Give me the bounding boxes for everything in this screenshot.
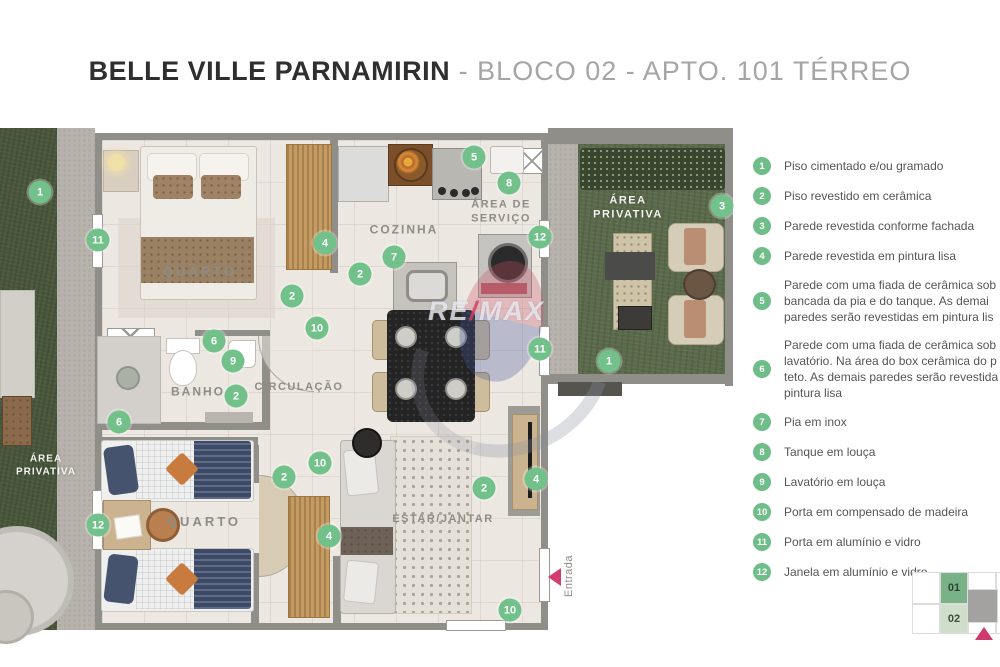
legend-text: Lavatório em louça xyxy=(784,474,885,490)
plan-marker-2: 2 xyxy=(273,466,296,489)
room-label-cozinha: COZINHA xyxy=(370,223,439,238)
key-plan-block-01: 01 xyxy=(940,572,968,604)
pillow xyxy=(103,553,139,604)
key-plan-cell xyxy=(912,572,940,604)
wardrobe xyxy=(288,496,330,618)
entrance-label: Entrada xyxy=(563,555,575,597)
legend-number: 7 xyxy=(753,413,771,431)
legend-number: 3 xyxy=(753,217,771,235)
legend-item-8: 8Tanque em louça xyxy=(753,443,1000,461)
legend-text: Piso revestido em cerâmica xyxy=(784,188,931,204)
burner xyxy=(462,189,470,197)
plan-marker-8: 8 xyxy=(498,172,521,195)
key-plan-cell xyxy=(912,604,940,634)
legend-number: 2 xyxy=(753,187,771,205)
legend-number: 9 xyxy=(753,473,771,491)
room-label-quarto: QUARTO xyxy=(167,514,241,530)
sofa xyxy=(340,440,396,614)
key-plan-core xyxy=(967,589,998,623)
plan-marker-2: 2 xyxy=(281,285,304,308)
hedge xyxy=(580,148,725,190)
room-label--rea-privativa: ÁREA PRIVATIVA xyxy=(593,194,663,222)
legend-text: Parede revestida em pintura lisa xyxy=(784,248,956,264)
wall xyxy=(548,128,733,144)
plan-marker-5: 5 xyxy=(463,146,486,169)
serving-tray xyxy=(618,306,652,330)
legend-item-4: 4Parede revestida em pintura lisa xyxy=(753,247,1000,265)
bath-counter xyxy=(205,412,253,423)
accent-pillow xyxy=(201,175,241,199)
plan-marker-7: 7 xyxy=(383,246,406,269)
legend-text: Piso cimentado e/ou gramado xyxy=(784,158,943,174)
legend-text: Janela em alumínio e vidro xyxy=(784,564,927,580)
service-window xyxy=(522,148,543,174)
place-setting xyxy=(395,326,417,348)
plan-marker-6: 6 xyxy=(108,411,131,434)
legend-number: 10 xyxy=(753,503,771,521)
plan-marker-11: 11 xyxy=(529,338,552,361)
watermark-re: RE xyxy=(428,296,470,326)
living-door-10 xyxy=(446,620,506,631)
plan-marker-2: 2 xyxy=(473,477,496,500)
legend-text: Porta em alumínio e vidro xyxy=(784,534,921,550)
picnic-table-top xyxy=(605,252,655,280)
burner xyxy=(450,189,458,197)
wall xyxy=(725,128,733,386)
desk-paper xyxy=(114,514,143,539)
plan-marker-10: 10 xyxy=(499,599,522,622)
legend-number: 8 xyxy=(753,443,771,461)
sofa-throw xyxy=(341,527,393,555)
fruit-bowl xyxy=(394,148,428,182)
room-label-circula-o: CIRCULAÇÃO xyxy=(255,381,344,395)
side-table-round xyxy=(352,428,382,458)
key-plan: 01 02 xyxy=(912,568,1000,646)
blanket xyxy=(194,441,251,499)
plan-marker-2: 2 xyxy=(349,263,372,286)
legend-item-1: 1Piso cimentado e/ou gramado xyxy=(753,157,1000,175)
side-table xyxy=(683,269,716,300)
project-name: BELLE VILLE PARNAMIRIN xyxy=(89,56,451,86)
room-label-estar-jantar: ESTAR/JANTAR xyxy=(392,513,493,527)
grill-table xyxy=(2,396,32,446)
legend-item-2: 2Piso revestido em cerâmica xyxy=(753,187,1000,205)
key-plan-north-arrow xyxy=(975,627,993,640)
plan-marker-3: 3 xyxy=(711,195,734,218)
legend-item-3: 3Parede revestida conforme fachada xyxy=(753,217,1000,235)
legend-item-7: 7Pia em inox xyxy=(753,413,1000,431)
burner xyxy=(438,187,446,195)
plan-marker-2: 2 xyxy=(225,385,248,408)
plan-marker-11: 11 xyxy=(87,229,110,252)
plan-marker-10: 10 xyxy=(309,452,332,475)
watermark-slash: / xyxy=(470,296,480,326)
legend-item-9: 9Lavatório em louça xyxy=(753,473,1000,491)
accent-pillow xyxy=(153,175,193,199)
pillow xyxy=(103,444,139,496)
legend-number: 11 xyxy=(753,533,771,551)
legend-number: 12 xyxy=(753,563,771,581)
key-plan-block-02: 02 xyxy=(940,604,968,634)
plan-marker-4: 4 xyxy=(314,232,337,255)
legend-text: Porta em compensado de madeira xyxy=(784,504,968,520)
plan-marker-1: 1 xyxy=(598,350,621,373)
burner xyxy=(471,187,479,195)
legend-number: 6 xyxy=(753,360,771,378)
legend: 1Piso cimentado e/ou gramado2Piso revest… xyxy=(753,157,1000,581)
room-label-quarto: QUARTO xyxy=(163,264,237,280)
room-label--rea-privativa: ÁREA PRIVATIVA xyxy=(16,454,76,479)
legend-text: Parede revestida conforme fachada xyxy=(784,218,974,234)
floor-plan: RE/MAX Entrada 1114210692621012472581211… xyxy=(0,128,736,633)
single-bed xyxy=(101,548,254,612)
shower-head xyxy=(116,366,140,390)
neighbor-deck xyxy=(0,290,35,398)
laundry-tank xyxy=(490,146,524,174)
legend-item-6: 6Parede com uma fiada de cerâmica sob la… xyxy=(753,337,1000,401)
sofa-cushion xyxy=(343,559,379,604)
plan-marker-4: 4 xyxy=(525,468,548,491)
legend-item-5: 5Parede com uma fiada de cerâmica sob ba… xyxy=(753,277,1000,325)
legend-number: 4 xyxy=(753,247,771,265)
legend-text: Pia em inox xyxy=(784,414,847,430)
legend-number: 5 xyxy=(753,292,771,310)
toilet-bowl xyxy=(169,350,197,386)
legend-number: 1 xyxy=(753,157,771,175)
legend-text: Parede com uma fiada de cerâmica sob lav… xyxy=(784,337,998,401)
single-bed xyxy=(101,440,254,502)
unit-name: - BLOCO 02 - APTO. 101 TÉRREO xyxy=(450,56,911,86)
legend-item-11: 11Porta em alumínio e vidro xyxy=(753,533,1000,551)
plan-marker-6: 6 xyxy=(203,330,226,353)
lounge-cushion xyxy=(684,300,706,338)
lounge-cushion xyxy=(684,228,706,265)
remax-watermark: RE/MAX xyxy=(428,296,545,327)
entrance-arrow xyxy=(548,568,561,586)
blanket xyxy=(194,549,251,609)
legend-text: Parede com uma fiada de cerâmica sob ban… xyxy=(784,277,996,325)
plan-marker-4: 4 xyxy=(318,525,341,548)
plan-marker-12: 12 xyxy=(529,226,552,249)
plan-marker-9: 9 xyxy=(222,350,245,373)
lamp xyxy=(108,154,125,171)
fridge xyxy=(338,146,389,202)
plan-marker-10: 10 xyxy=(306,317,329,340)
legend-text: Tanque em louça xyxy=(784,444,875,460)
plan-marker-12: 12 xyxy=(87,514,110,537)
plan-marker-1: 1 xyxy=(29,181,52,204)
room-label-banho: BANHO xyxy=(171,385,225,400)
watermark-max: MAX xyxy=(479,296,545,326)
legend-item-10: 10Porta em compensado de madeira xyxy=(753,503,1000,521)
room-label--rea-de-servi-o: ÁREA DE SERVIÇO xyxy=(471,198,531,226)
page-title: BELLE VILLE PARNAMIRIN - BLOCO 02 - APTO… xyxy=(0,56,1000,87)
